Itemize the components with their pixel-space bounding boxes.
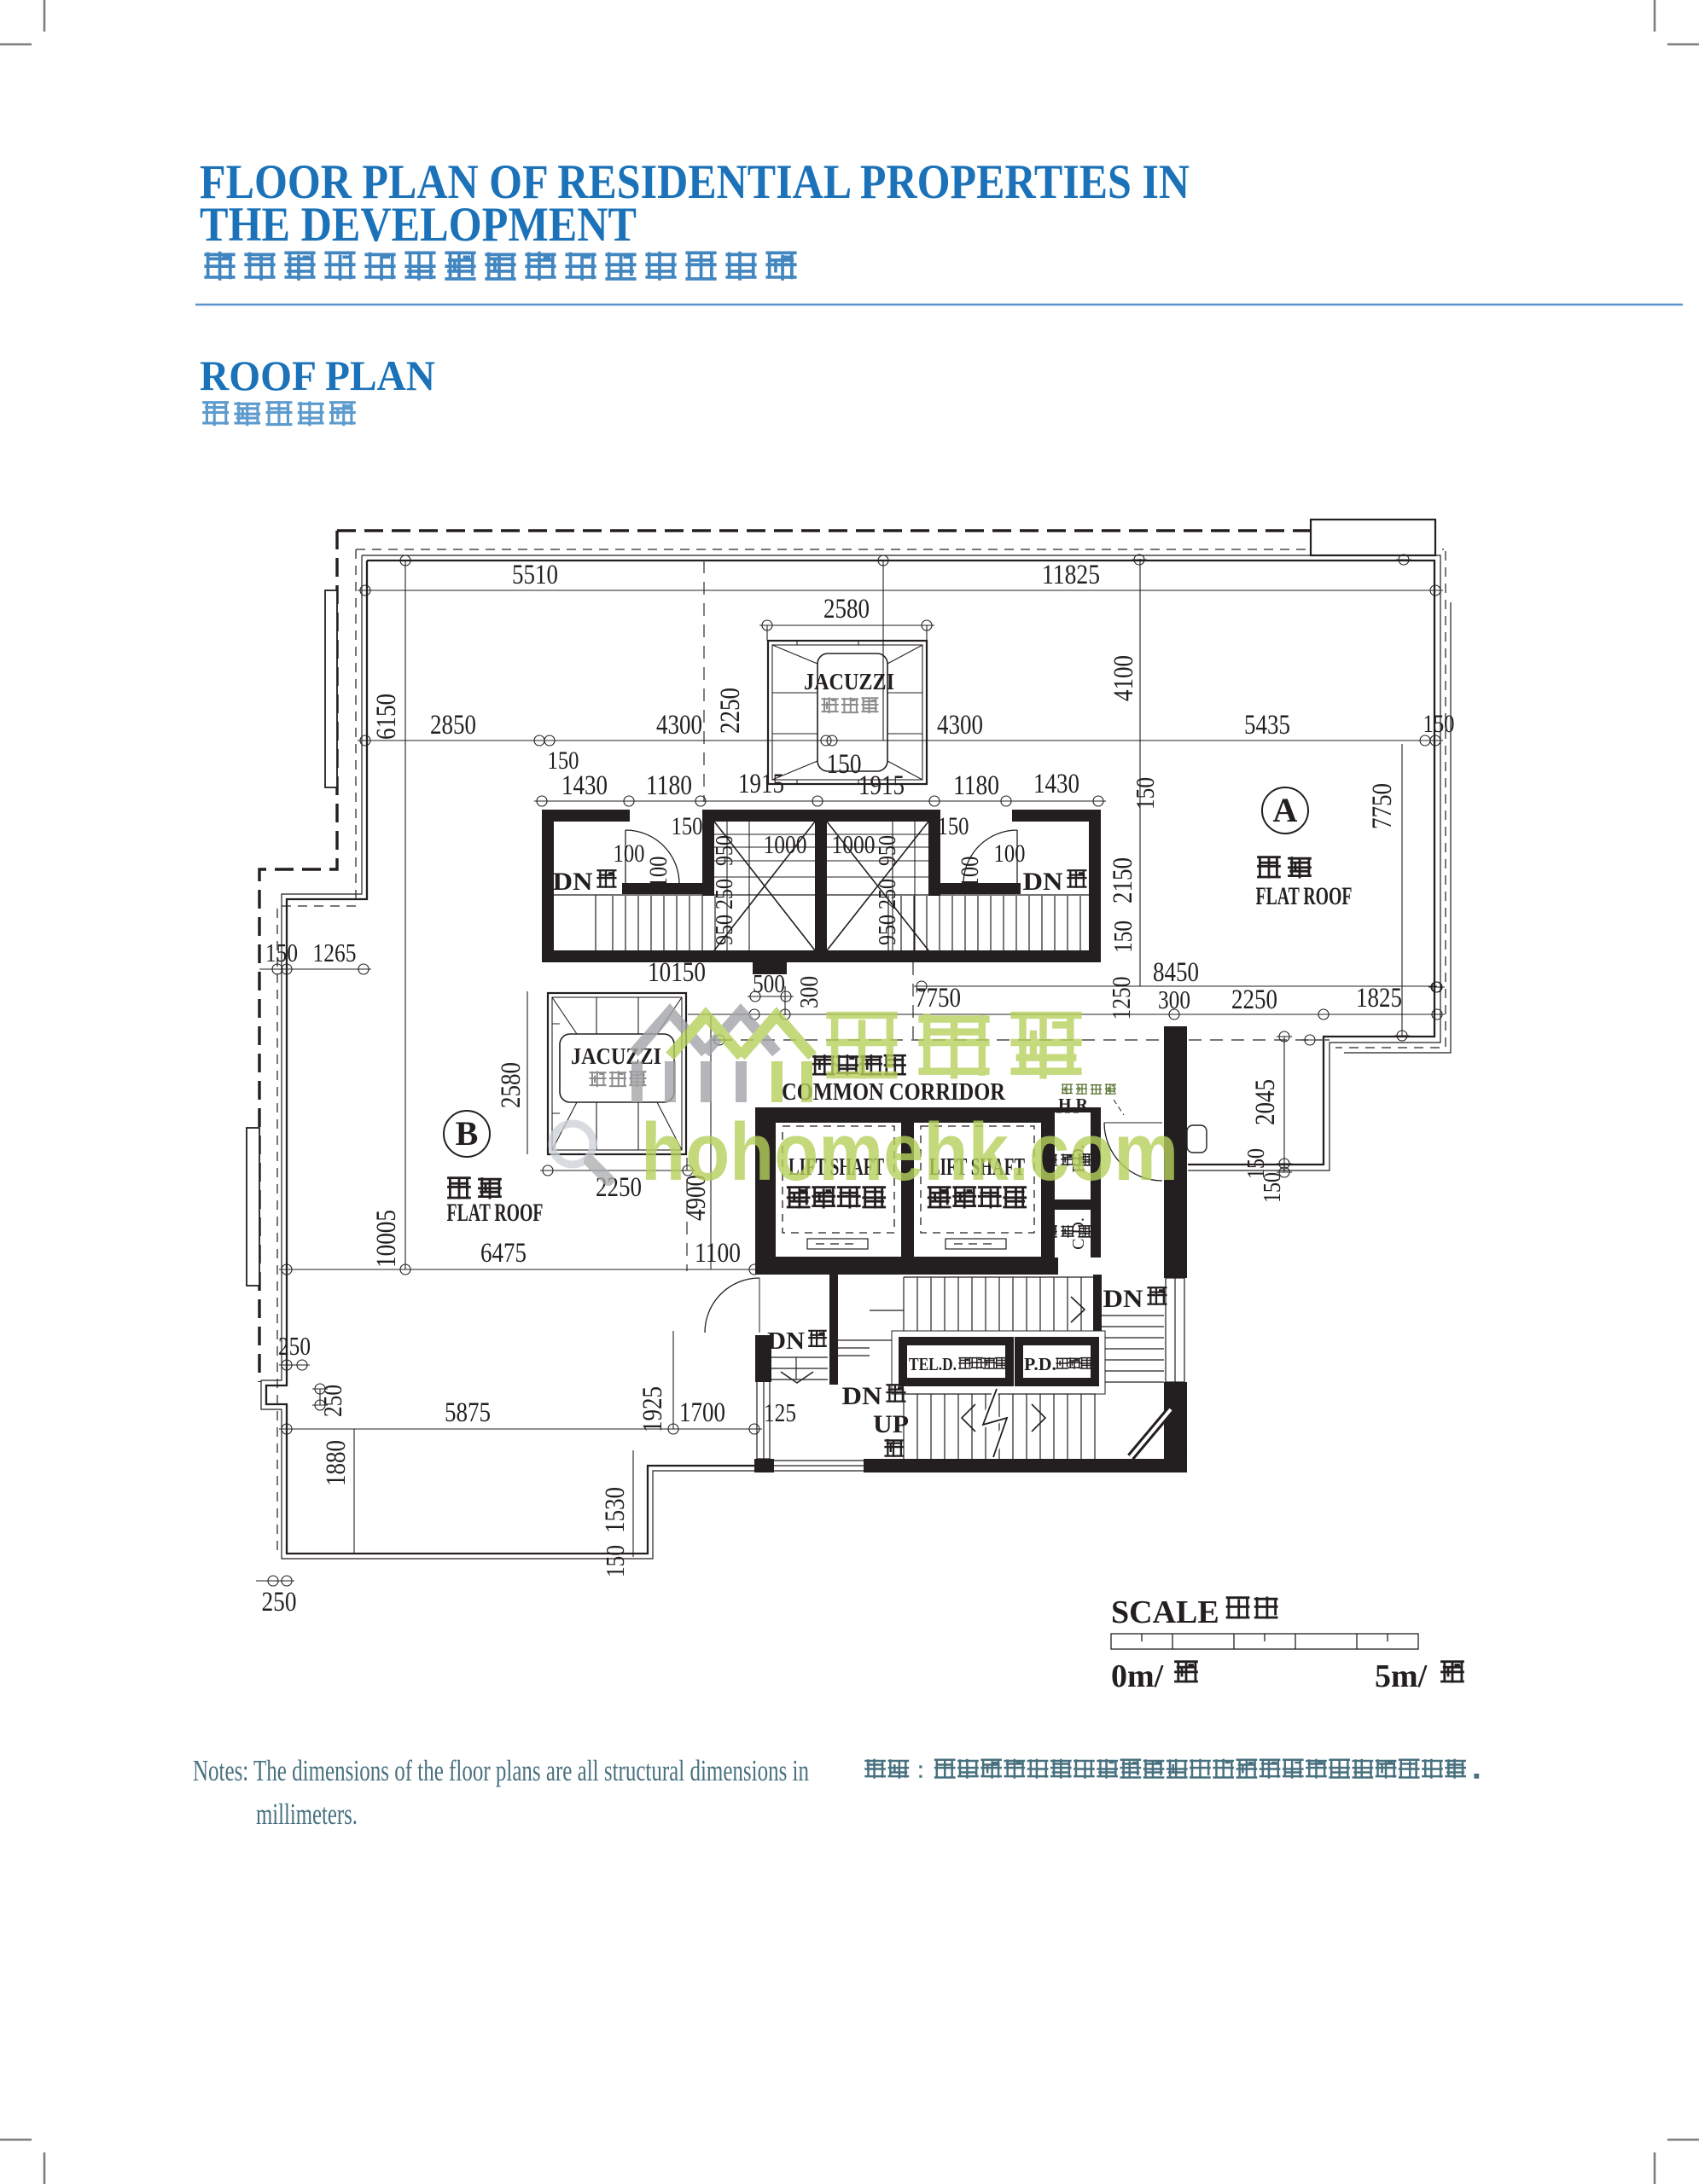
svg-text:2580: 2580	[823, 594, 870, 624]
svg-text:250: 250	[278, 1331, 311, 1361]
svg-text:2045: 2045	[1250, 1079, 1281, 1125]
svg-text:1100: 1100	[695, 1238, 741, 1269]
svg-text:11825: 11825	[1042, 560, 1100, 590]
svg-text:150: 150	[672, 812, 703, 840]
svg-text:JACUZZI: JACUZZI	[804, 669, 894, 694]
svg-text:1180: 1180	[646, 770, 692, 801]
svg-text:7750: 7750	[915, 983, 961, 1014]
svg-text:1530: 1530	[600, 1487, 631, 1533]
svg-text:2580: 2580	[496, 1062, 527, 1108]
svg-text:millimeters.: millimeters.	[256, 1798, 358, 1831]
svg-text:300: 300	[1158, 985, 1190, 1014]
svg-text:7750: 7750	[1367, 783, 1398, 829]
svg-text:DN: DN	[553, 868, 593, 896]
svg-text:DN: DN	[1023, 868, 1063, 896]
svg-text:300: 300	[794, 976, 823, 1008]
svg-text:950: 950	[874, 915, 901, 945]
svg-text:1925: 1925	[637, 1386, 668, 1432]
svg-text:DN: DN	[1103, 1285, 1143, 1313]
svg-text:FLAT ROOF: FLAT ROOF	[447, 1199, 544, 1227]
svg-text:6150: 6150	[371, 694, 402, 740]
svg-text:150: 150	[827, 749, 862, 780]
svg-text:JACUZZI: JACUZZI	[571, 1043, 661, 1069]
svg-text:UP: UP	[873, 1410, 909, 1438]
svg-text:hohomehk.com: hohomehk.com	[641, 1107, 1178, 1198]
svg-text:150: 150	[600, 1545, 630, 1577]
svg-text:TEL.D.: TEL.D.	[909, 1354, 957, 1374]
svg-text:150: 150	[1423, 710, 1455, 738]
svg-text:FLAT ROOF: FLAT ROOF	[1256, 882, 1353, 910]
svg-text:6475: 6475	[480, 1238, 527, 1269]
svg-text:8450: 8450	[1153, 957, 1199, 988]
svg-text:A: A	[1273, 791, 1298, 829]
svg-text:1430: 1430	[1033, 769, 1079, 799]
svg-text:125: 125	[764, 1397, 796, 1427]
svg-text:150: 150	[1108, 921, 1138, 953]
svg-text:0m/: 0m/	[1111, 1658, 1164, 1694]
svg-text:950: 950	[711, 835, 738, 866]
svg-text:1915: 1915	[858, 770, 905, 801]
svg-text:150: 150	[1259, 1172, 1286, 1203]
svg-text:250: 250	[317, 1385, 347, 1417]
svg-text:100: 100	[994, 839, 1026, 868]
svg-text:250: 250	[262, 1587, 297, 1618]
svg-text:4300: 4300	[937, 710, 983, 741]
svg-text:Notes: The dimensions of the f: Notes: The dimensions of the floor plans…	[193, 1754, 809, 1787]
svg-text:100: 100	[614, 839, 645, 868]
svg-text:100: 100	[956, 857, 984, 888]
svg-text:5510: 5510	[512, 560, 558, 590]
svg-text:DN: DN	[767, 1328, 805, 1355]
svg-text:1430: 1430	[561, 770, 608, 801]
svg-text:100: 100	[644, 857, 672, 888]
svg-text:1825: 1825	[1356, 983, 1402, 1014]
svg-text:150: 150	[938, 812, 969, 840]
svg-text:DN: DN	[842, 1382, 882, 1410]
svg-text:1000: 1000	[764, 829, 807, 859]
svg-text:5m/: 5m/	[1375, 1658, 1428, 1694]
svg-text:150: 150	[265, 938, 298, 967]
svg-text:5435: 5435	[1244, 710, 1290, 741]
svg-text:COMMON CORRIDOR: COMMON CORRIDOR	[782, 1078, 1006, 1106]
svg-text:1250: 1250	[1106, 977, 1136, 1020]
svg-text:10005: 10005	[371, 1210, 402, 1268]
svg-text:1180: 1180	[953, 770, 999, 801]
svg-text:P.D.: P.D.	[1024, 1354, 1056, 1374]
svg-text:4300: 4300	[656, 710, 702, 741]
svg-text:SCALE: SCALE	[1111, 1594, 1219, 1630]
svg-text:1700: 1700	[679, 1397, 725, 1428]
svg-text:250: 250	[874, 879, 901, 909]
svg-text:ROOF PLAN: ROOF PLAN	[200, 351, 435, 399]
svg-text:C.D.: C.D.	[1069, 1217, 1088, 1250]
svg-text:B: B	[456, 1114, 479, 1153]
svg-text:2250: 2250	[715, 688, 746, 734]
svg-text:2150: 2150	[1108, 857, 1138, 903]
svg-text:1880: 1880	[321, 1440, 352, 1486]
svg-text:4100: 4100	[1108, 655, 1139, 701]
svg-text:2850: 2850	[430, 710, 476, 741]
svg-text:5875: 5875	[445, 1397, 491, 1428]
svg-text:150: 150	[1130, 777, 1160, 810]
svg-text:THE DEVELOPMENT: THE DEVELOPMENT	[200, 198, 637, 252]
svg-text:2250: 2250	[1231, 985, 1277, 1015]
svg-text:1265: 1265	[313, 938, 357, 967]
